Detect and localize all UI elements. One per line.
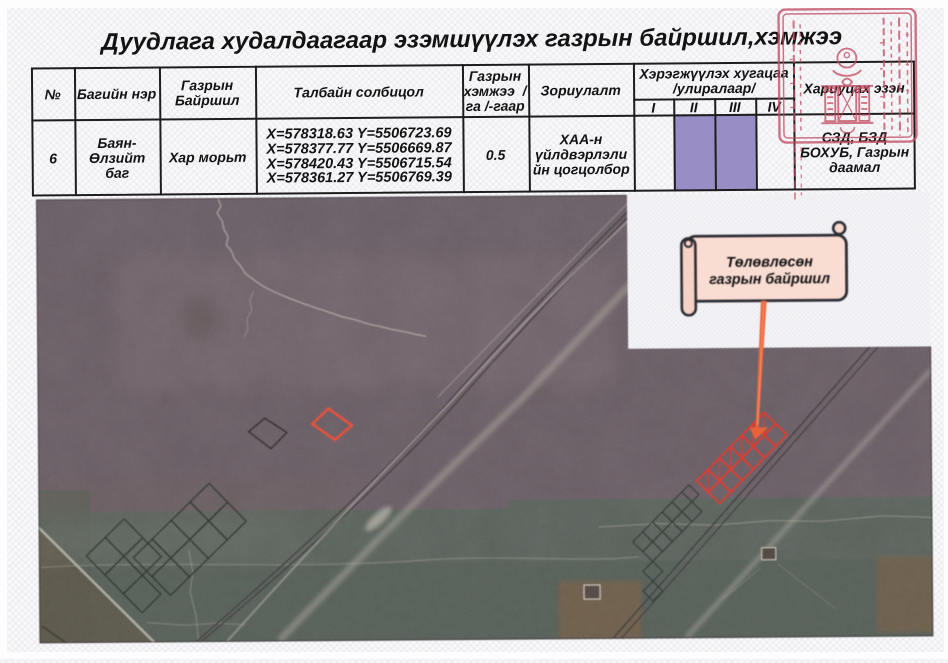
svg-text:Төлөвлөсөн: Төлөвлөсөн bbox=[726, 254, 813, 271]
svg-text:газрын байршил: газрын байршил bbox=[709, 271, 830, 288]
